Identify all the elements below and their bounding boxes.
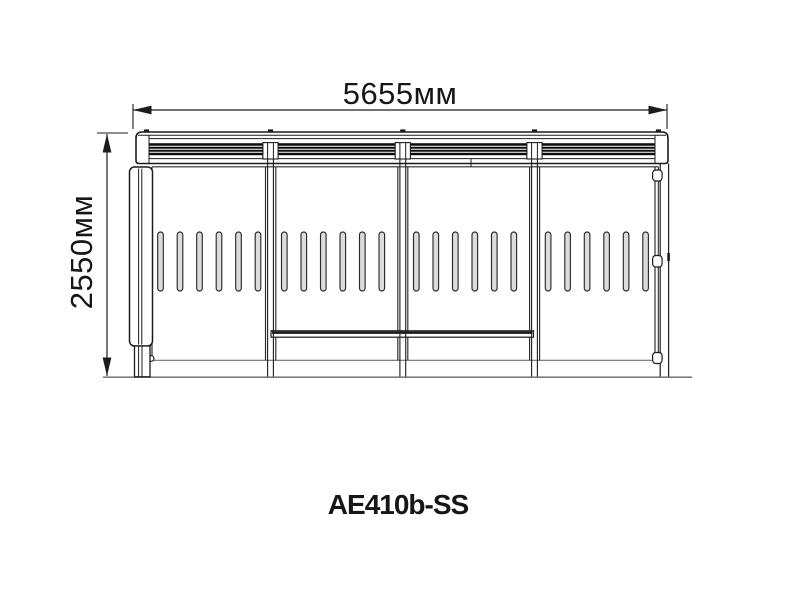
louver-slot (414, 232, 420, 291)
louver-slot (623, 232, 629, 291)
roof-tick (656, 129, 661, 132)
bench-seat (271, 331, 534, 337)
louver-slot (379, 232, 385, 291)
roof-tick (144, 129, 149, 132)
shelter-technical-drawing: 5655мм 2550мм AE410b-SS (0, 0, 800, 600)
left-end-panel-outline (130, 167, 153, 346)
louver-slot (301, 232, 307, 291)
louver-slot (197, 232, 203, 291)
louver-slot (433, 232, 439, 291)
wall-panels (150, 159, 658, 360)
louver-slot (236, 232, 242, 291)
left-end-panel (130, 167, 155, 377)
elevation-view: 5655мм 2550мм AE410b-SS (0, 0, 800, 600)
louver-slot (321, 232, 327, 291)
louver-slot (216, 232, 222, 291)
louver-slot (584, 232, 590, 291)
post-collar (263, 143, 278, 159)
louver-slot (340, 232, 346, 291)
shelter-structure (130, 129, 669, 376)
louver-slot (604, 232, 610, 291)
louver-slot (360, 232, 366, 291)
height-arrow-top (103, 134, 112, 153)
louver-slot (158, 232, 164, 291)
post-collar (395, 143, 410, 159)
model-label: AE410b-SS (328, 489, 469, 520)
louver-slot (472, 232, 478, 291)
right-side-tab (653, 353, 663, 364)
post-collar (527, 143, 542, 159)
height-dimension-label: 2550мм (64, 195, 99, 310)
louver-slot (511, 232, 517, 291)
height-arrow-bottom (103, 358, 112, 377)
louver-slot (282, 232, 288, 291)
width-dimension-label: 5655мм (343, 76, 458, 111)
roof-tick (400, 129, 405, 132)
louver-slot (492, 232, 498, 291)
width-arrow-left (133, 106, 152, 115)
right-side-tab (653, 256, 663, 268)
louver-slot (453, 232, 459, 291)
width-arrow-right (649, 106, 668, 115)
width-dimension: 5655мм (133, 76, 667, 129)
louver-slots (158, 232, 649, 291)
louver-slot (545, 232, 551, 291)
louver-slot (643, 232, 649, 291)
louver-slot (255, 232, 261, 291)
height-dimension: 2550мм (64, 133, 128, 376)
roof-tick (268, 129, 273, 132)
right-side-tab (653, 170, 663, 181)
roof-tick (532, 129, 537, 132)
louver-slot (177, 232, 183, 291)
louver-slot (565, 232, 571, 291)
